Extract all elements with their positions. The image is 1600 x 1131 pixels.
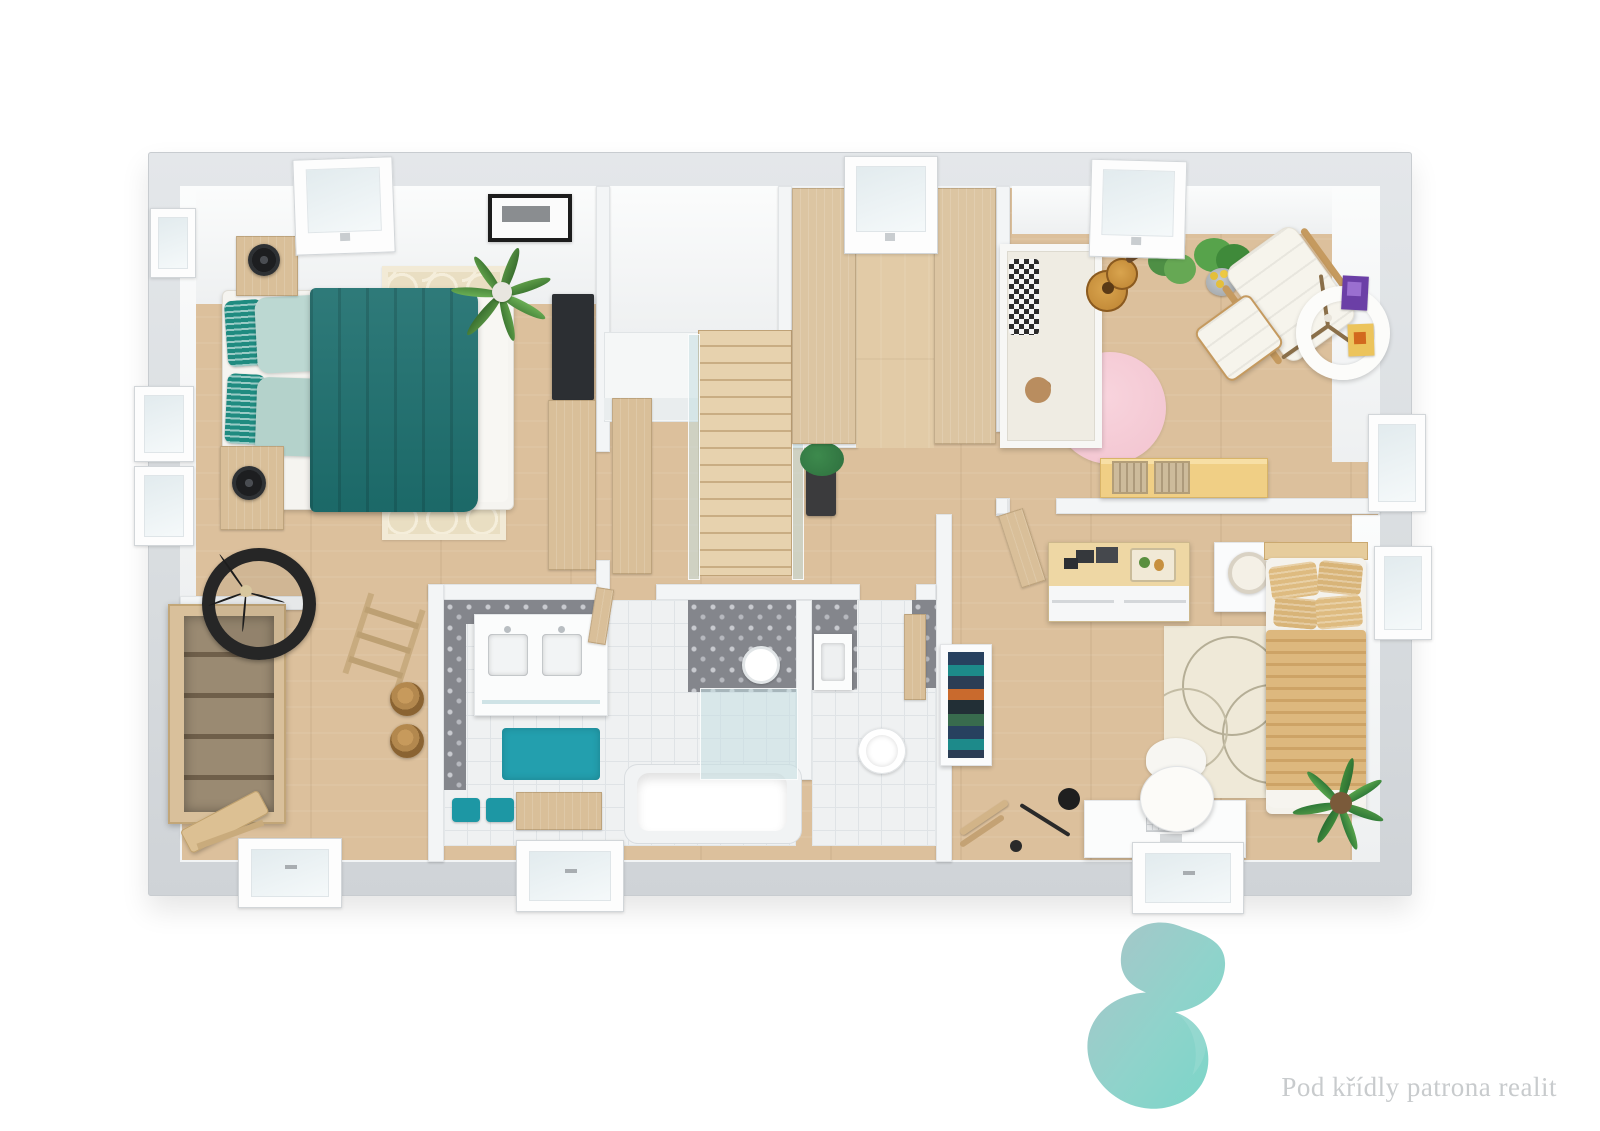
- tulip-chair: [1136, 738, 1216, 832]
- storage-basket-2: [1154, 461, 1190, 494]
- roof-window-kids: [1089, 159, 1188, 259]
- art-inner: [1354, 332, 1366, 344]
- ceiling-slope-hall: [604, 186, 780, 336]
- staircase: [698, 330, 792, 576]
- rattan-round-chair: [202, 548, 292, 636]
- chair-center: [240, 585, 252, 597]
- tan-pillow: [1315, 594, 1364, 630]
- window-handle: [885, 233, 895, 241]
- roof-window-glass: [856, 166, 926, 232]
- tray: [1130, 548, 1176, 582]
- wall-bath-north-a: [428, 584, 598, 600]
- bath-teal-rug: [502, 728, 600, 780]
- closet-corridor-floor: [856, 238, 934, 448]
- palm-pot: [492, 282, 512, 302]
- photo-frame: [1064, 558, 1078, 569]
- tv-cabinet: [548, 400, 596, 570]
- tv: [552, 294, 594, 400]
- window-glass: [158, 217, 188, 269]
- tan-pillow: [1268, 561, 1320, 601]
- bedroom-plant: [1288, 748, 1392, 856]
- roof-window-glass: [306, 167, 382, 234]
- wall-picture: [488, 194, 572, 242]
- books: [948, 652, 984, 758]
- dresser: [1048, 542, 1190, 622]
- window-glass: [1145, 853, 1231, 903]
- stair-balustrade-left: [688, 334, 700, 580]
- window-bottom-bath: [516, 840, 624, 912]
- arc-floor-lamp: [1010, 784, 1090, 860]
- bath-tile-wall-west: [444, 600, 466, 790]
- window-handle: [565, 869, 577, 873]
- wc-hand-basin: [814, 634, 852, 690]
- plant-pot: [1330, 792, 1352, 814]
- tray-item: [1154, 559, 1164, 571]
- window-right-1: [1368, 414, 1426, 512]
- master-palm-plant: [446, 242, 556, 346]
- ladder-rung: [356, 631, 411, 654]
- sink-right: [542, 634, 582, 676]
- window-glass: [1378, 424, 1416, 502]
- window-handle: [340, 233, 350, 241]
- ladder-rung: [348, 656, 403, 679]
- photo-frame: [1076, 550, 1094, 563]
- window-left-upper: [150, 208, 196, 278]
- entry-door-bottom-left: [238, 838, 342, 908]
- roof-window-glass: [1101, 169, 1175, 237]
- bathtub-basin: [637, 773, 787, 831]
- storage-basket-1: [1112, 461, 1148, 494]
- wall-art-purple: [1341, 275, 1369, 310]
- valet-stand: [952, 786, 1012, 852]
- tray-item: [1139, 557, 1150, 568]
- wall-bath-north-c: [916, 584, 936, 600]
- bookcase: [940, 644, 992, 766]
- roof-window-master: [292, 156, 395, 255]
- table-lamp-top: [248, 244, 280, 276]
- faucet-left: [504, 626, 511, 633]
- table-lamp-bottom: [232, 466, 266, 500]
- sink-left: [488, 634, 528, 676]
- tan-pillow: [1316, 560, 1363, 596]
- picture-image: [502, 206, 550, 222]
- rain-shower-head: [742, 646, 780, 684]
- vanity-towel-rail: [482, 700, 600, 704]
- wc-basin-bowl: [821, 643, 845, 681]
- door-handle: [285, 865, 297, 869]
- ceiling-slope-kids: [1012, 186, 1380, 234]
- window-left-2: [134, 466, 194, 546]
- brand-logo-text: Pod křídly patrona realit: [1095, 1072, 1557, 1103]
- wall-bath-north-b: [656, 584, 860, 600]
- wicker-basket-1: [390, 682, 424, 716]
- wicker-basket-2: [390, 724, 424, 758]
- wall-kids-south-b: [1056, 498, 1380, 514]
- window-left-1: [134, 386, 194, 462]
- crib-pattern-blanket: [1009, 259, 1039, 335]
- photo-frame: [1096, 547, 1118, 563]
- window-glass: [144, 395, 184, 453]
- wall-shower-wc-divider: [796, 600, 812, 780]
- ladder-rung: [364, 606, 419, 629]
- tan-pillow: [1273, 596, 1319, 630]
- window-right-2: [1374, 546, 1432, 640]
- lamp-head: [1058, 788, 1080, 810]
- window-handle: [1183, 871, 1195, 875]
- hall-cabinet: [612, 398, 652, 574]
- wall-bath-west: [428, 584, 444, 862]
- wall-kids-south-a: [996, 498, 1008, 514]
- orchid-leaves: [800, 442, 844, 476]
- roof-window-closet: [844, 156, 938, 254]
- shower-tile-wall: [688, 600, 796, 692]
- drawer-line: [1052, 600, 1114, 603]
- faucet-right: [558, 626, 565, 633]
- chair-ring: [202, 548, 316, 660]
- window-glass: [1384, 556, 1422, 630]
- wc-door: [904, 614, 926, 700]
- teddy-bear: [1025, 377, 1051, 403]
- window-bottom-bedroom: [1132, 842, 1244, 914]
- chair-seat: [1140, 766, 1214, 832]
- teal-stool-1: [452, 798, 480, 822]
- wall-art-yellow: [1347, 324, 1374, 357]
- toilet-seat: [866, 735, 898, 767]
- toilet: [858, 728, 906, 774]
- walk-in-shower: [700, 688, 798, 780]
- guitar-soundhole: [1102, 282, 1114, 294]
- window-handle: [1131, 237, 1141, 245]
- art-inner: [1347, 282, 1362, 297]
- double-vanity: [474, 614, 608, 716]
- teal-stool-2: [486, 798, 514, 822]
- bath-bench: [516, 792, 602, 830]
- drawer-line: [1124, 600, 1186, 603]
- wardrobe-right: [934, 188, 996, 444]
- window-glass: [144, 475, 184, 537]
- window-glass: [529, 851, 611, 901]
- door-panel: [251, 849, 329, 897]
- lamp-bulb: [1324, 314, 1332, 322]
